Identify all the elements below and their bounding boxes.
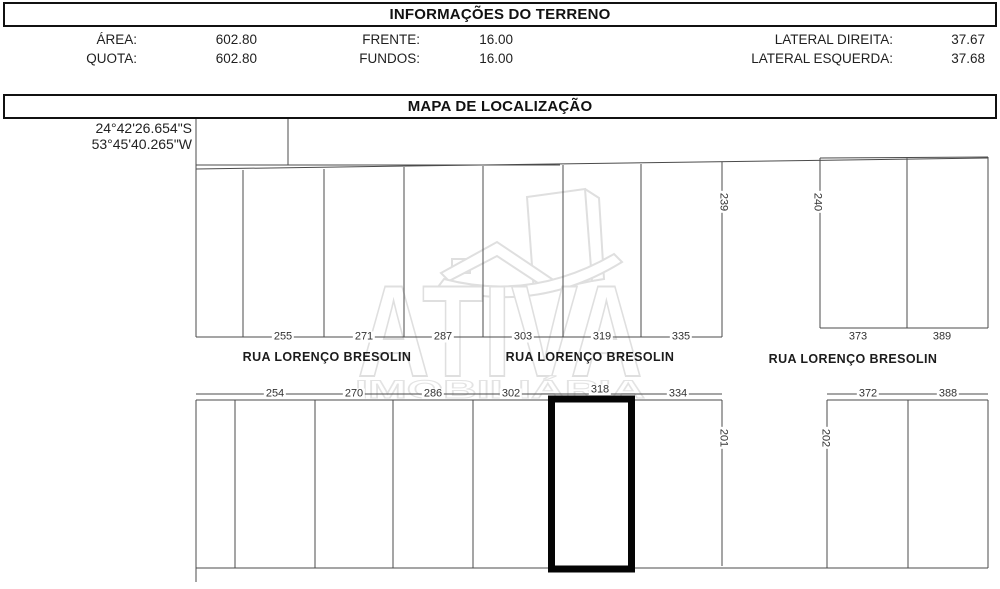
- lot-number: 270: [343, 389, 365, 400]
- block-number: 201: [718, 427, 729, 449]
- lot-number: 335: [670, 332, 692, 343]
- lot-number: 287: [432, 332, 454, 343]
- lower-right-block-lines: [827, 394, 988, 568]
- lot-number: 255: [272, 332, 294, 343]
- lot-number: 319: [591, 332, 613, 343]
- lot-number: 254: [264, 389, 286, 400]
- terrain-report-page: { "colors": {"line": "#4b4b4b", "highlig…: [0, 0, 1000, 589]
- lot-number: 271: [353, 332, 375, 343]
- block-top-sloped-line: [196, 158, 988, 169]
- map-drawing: ATIVA IMOBILIÁRIA: [0, 0, 1000, 589]
- street-name: RUA LORENÇO BRESOLIN: [243, 350, 412, 364]
- lot-number: 373: [847, 332, 869, 343]
- lot-number: 334: [667, 389, 689, 400]
- street-name: RUA LORENÇO BRESOLIN: [769, 352, 938, 366]
- lot-number: 286: [422, 389, 444, 400]
- highlighted-lot-number: 318: [589, 385, 611, 396]
- lot-number: 303: [512, 332, 534, 343]
- block-number: 240: [812, 191, 823, 213]
- street-name: RUA LORENÇO BRESOLIN: [506, 350, 675, 364]
- lot-number: 302: [500, 389, 522, 400]
- block-number: 239: [718, 191, 729, 213]
- highlighted-lot-outline: [552, 399, 632, 569]
- block-number: 202: [820, 427, 831, 449]
- lot-number: 372: [857, 389, 879, 400]
- lot-number: 389: [931, 332, 953, 343]
- lot-number: 388: [937, 389, 959, 400]
- lower-lot-row-lines: [196, 394, 988, 582]
- upper-right-block-lines: [820, 157, 988, 328]
